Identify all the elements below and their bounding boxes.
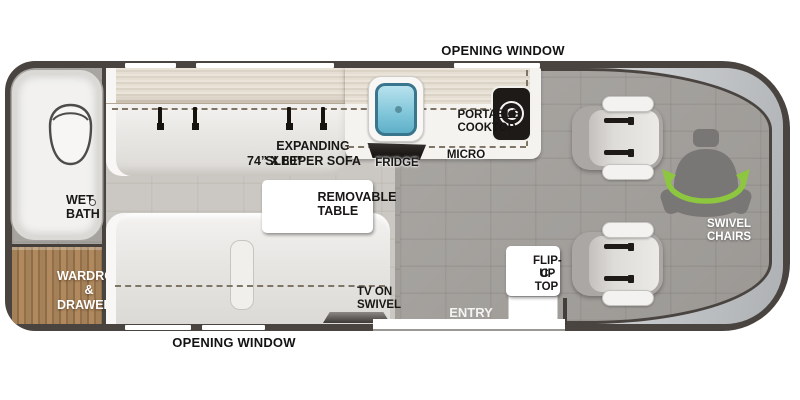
swivel-line2: CHAIRS [707,231,751,244]
swivel-chairs-label: SWIVEL CHAIRS [665,218,749,231]
removable-table-label: REMOVABLE TABLE [262,190,373,204]
wardrobe-label: WARDROBE & DRAWERS [12,269,102,283]
tv-on-swivel-label: TV ON SWIVEL [307,286,407,299]
opening-window-segment [125,63,176,68]
rv-floorplan: OPENING WINDOW OPENING WINDOW WET BATH W… [0,0,800,400]
opening-window-segment [196,63,334,68]
chair-armrest [602,290,654,306]
cooktop-line2: COOKTOP [458,122,516,135]
opening-window-segment [454,63,540,68]
micro-label: MICRO [436,149,496,162]
swivel-arrowhead-right [736,169,750,187]
sleeper-sofa-label: EXPANDING SLEEPER SOFA 74” X 80” [115,139,379,154]
fridge-label: FRIDGE [367,157,427,170]
swivel-seat-icon [660,127,752,223]
chair-armrest [602,164,654,180]
swivel-chair-driver [572,106,663,170]
swivel-chair-passenger [572,232,663,296]
swivel-arrowhead-left [662,169,676,187]
wet-bath-line2: BATH [66,207,100,221]
seatbelt-icon [158,107,162,124]
entry-door-opening [373,319,565,331]
van-body-outline: WET BATH WARDROBE & DRAWERS EXPANDING SL… [5,61,790,331]
flipup-line2: C-TOP [533,268,560,294]
toilet-icon [43,102,98,172]
sleeper-sofa-size: 74” X 80” [247,154,303,169]
tv-line2: SWIVEL [357,299,401,312]
swivel-line1: SWIVEL [707,218,751,231]
opening-window-segment [202,325,265,330]
chair-armrest [602,96,654,112]
opening-window-label-top: OPENING WINDOW [403,44,603,59]
flip-up-ctop-labelbox: FLIP-UP C-TOP [506,246,560,296]
removable-table: REMOVABLE TABLE [262,180,373,233]
sofa-cushion-divider [230,240,254,310]
seatbelt-icon [321,107,325,124]
chair-armrest [602,222,654,238]
portable-cooktop-label: PORTABLE COOKTOP [405,109,510,122]
rear-counter [106,68,345,104]
table-line1: REMOVABLE [318,190,397,204]
wet-bath: WET BATH [12,70,102,240]
seatbelt-icon [604,276,632,281]
seatbelt-icon [604,150,632,155]
flip-up-ctop-label: FLIP-UP C-TOP [506,255,560,268]
seatbelt-icon [193,107,197,124]
seatbelt-icon [287,107,291,124]
opening-window-segment [125,325,191,330]
faucet-icon [395,106,402,113]
seatbelt-icon [604,244,632,249]
table-line2: TABLE [318,204,359,218]
drain-icon [89,199,96,206]
cooktop-line1: PORTABLE [458,109,520,122]
wardrobe-drawers: WARDROBE & DRAWERS [12,244,102,324]
tv-line1: TV ON [357,286,392,299]
seatbelt-icon [604,118,632,123]
opening-window-label-bottom: OPENING WINDOW [134,336,334,351]
